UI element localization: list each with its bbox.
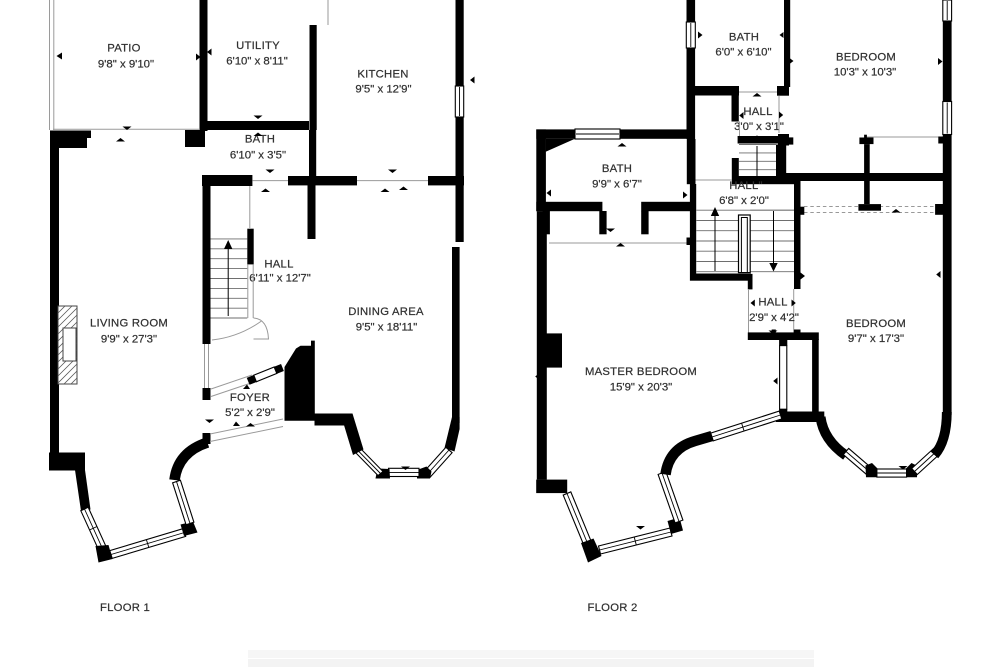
svg-text:3'0" x 3'1": 3'0" x 3'1" (734, 121, 784, 133)
svg-text:6'10" x 8'11": 6'10" x 8'11" (226, 56, 288, 68)
svg-text:FLOOR 2: FLOOR 2 (588, 602, 638, 614)
svg-text:6'10" x 3'5": 6'10" x 3'5" (230, 150, 286, 162)
svg-text:BEDROOM: BEDROOM (846, 318, 906, 330)
svg-text:6'8" x 2'0": 6'8" x 2'0" (719, 195, 769, 207)
svg-text:BATH: BATH (602, 163, 632, 175)
svg-text:BATH: BATH (729, 32, 759, 44)
svg-text:HALL": HALL" (729, 180, 763, 192)
svg-text:9'7" x 17'3": 9'7" x 17'3" (848, 333, 904, 345)
svg-text:6'11" x 12'7": 6'11" x 12'7" (249, 273, 311, 285)
svg-text:9'5" x 18'11": 9'5" x 18'11" (356, 322, 418, 334)
svg-text:9'9" x 27'3": 9'9" x 27'3" (101, 334, 157, 346)
svg-text:DINING AREA: DINING AREA (348, 306, 424, 318)
svg-text:PATIO: PATIO (107, 43, 140, 55)
svg-text:HALL: HALL (264, 259, 293, 271)
svg-text:HALL: HALL (758, 297, 787, 309)
svg-text:HALL: HALL (743, 106, 772, 118)
svg-text:UTILITY: UTILITY (236, 40, 280, 52)
svg-text:LIVING ROOM: LIVING ROOM (90, 318, 168, 330)
svg-text:9'9" x 6'7": 9'9" x 6'7" (592, 179, 642, 191)
svg-text:10'3" x 10'3": 10'3" x 10'3" (834, 67, 896, 79)
svg-text:5'2" x 2'9": 5'2" x 2'9" (225, 407, 275, 419)
svg-text:6'0" x 6'10": 6'0" x 6'10" (715, 47, 771, 59)
svg-text:MASTER BEDROOM: MASTER BEDROOM (585, 366, 697, 378)
svg-text:FOYER: FOYER (230, 392, 270, 404)
svg-text:FLOOR 1: FLOOR 1 (100, 602, 150, 614)
svg-text:2'9" x 4'2": 2'9" x 4'2" (749, 312, 799, 324)
svg-text:9'5" x 12'9": 9'5" x 12'9" (355, 84, 411, 96)
svg-text:BEDROOM: BEDROOM (836, 52, 896, 64)
svg-text:KITCHEN: KITCHEN (357, 69, 408, 81)
svg-text:9'8" x 9'10": 9'8" x 9'10" (98, 59, 154, 71)
svg-text:15'9" x 20'3": 15'9" x 20'3" (610, 382, 672, 394)
